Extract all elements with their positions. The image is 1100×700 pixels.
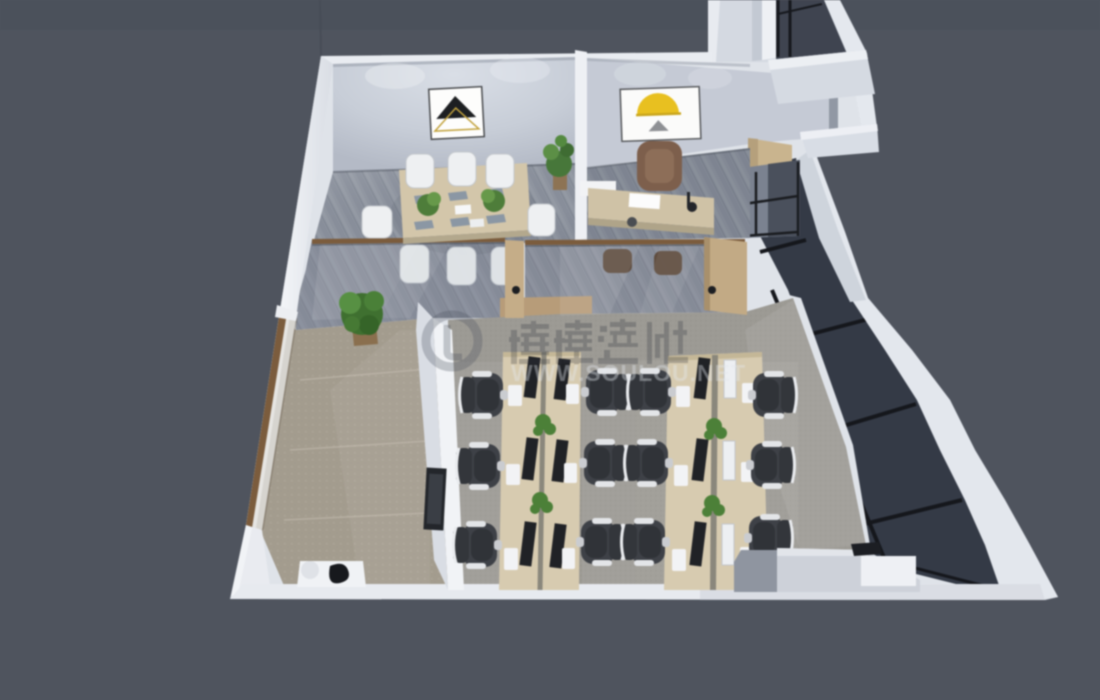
svg-text:WWW.SOULOU.NET: WWW.SOULOU.NET bbox=[511, 360, 746, 386]
